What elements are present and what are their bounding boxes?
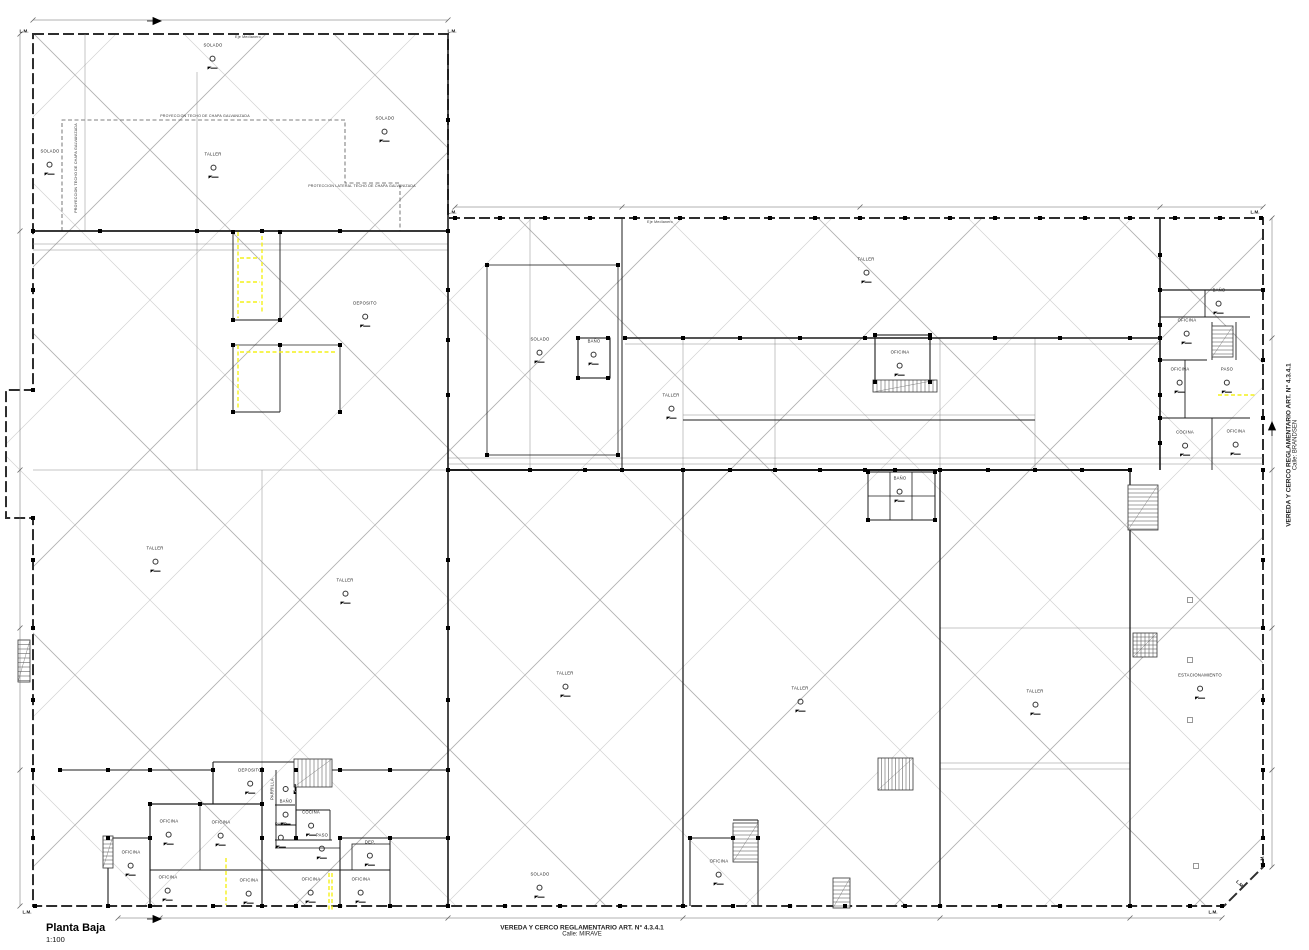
street-note-bottom-line1: VEREDA Y CERCO REGLAMENTARIO ART. N° 4.3… xyxy=(500,925,664,932)
street-note-bottom: VEREDA Y CERCO REGLAMENTARIO ART. N° 4.3… xyxy=(500,925,664,938)
street-note-right: VEREDA Y CERCO REGLAMENTARIO ART. N° 4.3… xyxy=(1286,363,1299,527)
title-block: Planta Baja 1:100 xyxy=(46,922,105,944)
plan-drawing xyxy=(0,0,1309,950)
street-note-right-line1: VEREDA Y CERCO REGLAMENTARIO ART. N° 4.3… xyxy=(1286,363,1293,527)
street-note-bottom-line2: Calle: MIRAVE xyxy=(500,932,664,938)
floor-plan-sheet: SOLADOSOLADOSOLADOTALLERDEPOSITOSOLADOBA… xyxy=(0,0,1309,950)
plan-scale: 1:100 xyxy=(46,935,105,944)
plan-title: Planta Baja xyxy=(46,922,105,934)
street-note-right-line2: Calle: BRANDSEN xyxy=(1293,363,1299,527)
